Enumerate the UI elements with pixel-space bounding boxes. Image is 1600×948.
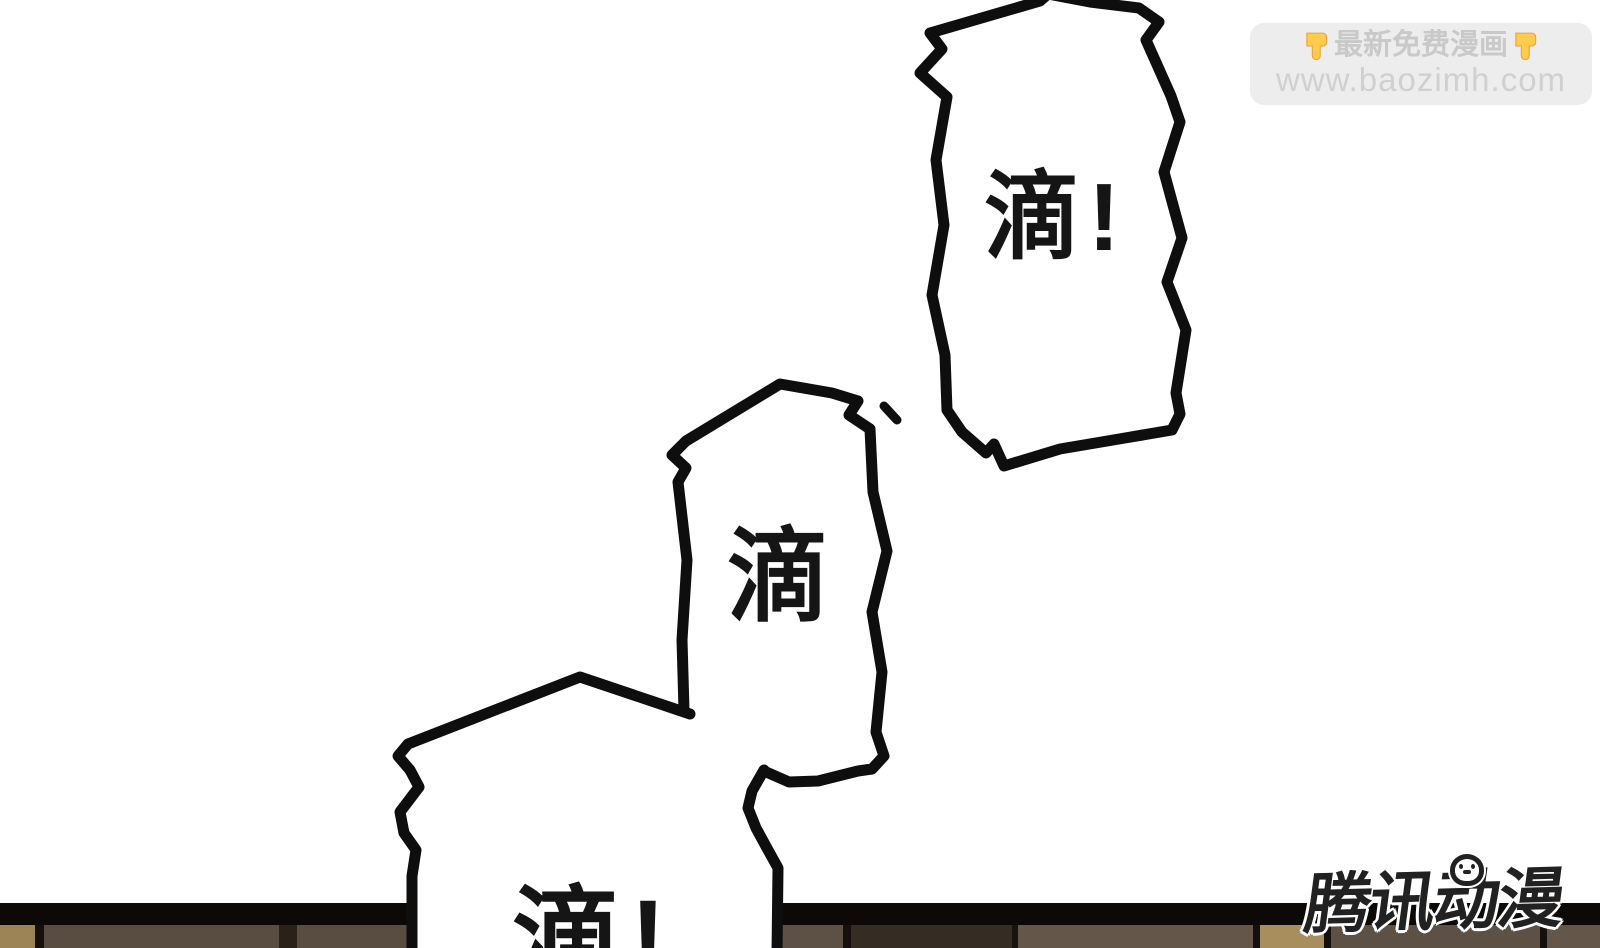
- ink-dash: [884, 406, 897, 420]
- watermark-url: www.baozimh.com: [1276, 62, 1566, 98]
- watermark-line1-text: 最新免费漫画: [1334, 30, 1508, 62]
- pointing-down-icon: [1303, 31, 1330, 61]
- speech-bubble-layer: [0, 0, 1600, 948]
- publisher-logo-text: 腾讯动漫: [1301, 865, 1567, 938]
- speech-bubble-2-text: 滴: [727, 526, 829, 628]
- pointing-down-icon: [1512, 31, 1539, 61]
- speech-bubble-1-text: 滴!: [984, 170, 1128, 266]
- site-watermark: 最新免费漫画 www.baozimh.com: [1250, 23, 1592, 105]
- penguin-icon: [1450, 854, 1484, 886]
- speech-bubble-3-text: 滴!: [512, 884, 676, 948]
- watermark-line1: 最新免费漫画: [1303, 30, 1539, 62]
- comic-page: 滴! 滴 滴! 最新免费漫画 www.baozimh.com 腾讯动漫: [0, 0, 1600, 948]
- publisher-logo: 腾讯动漫: [1298, 846, 1590, 946]
